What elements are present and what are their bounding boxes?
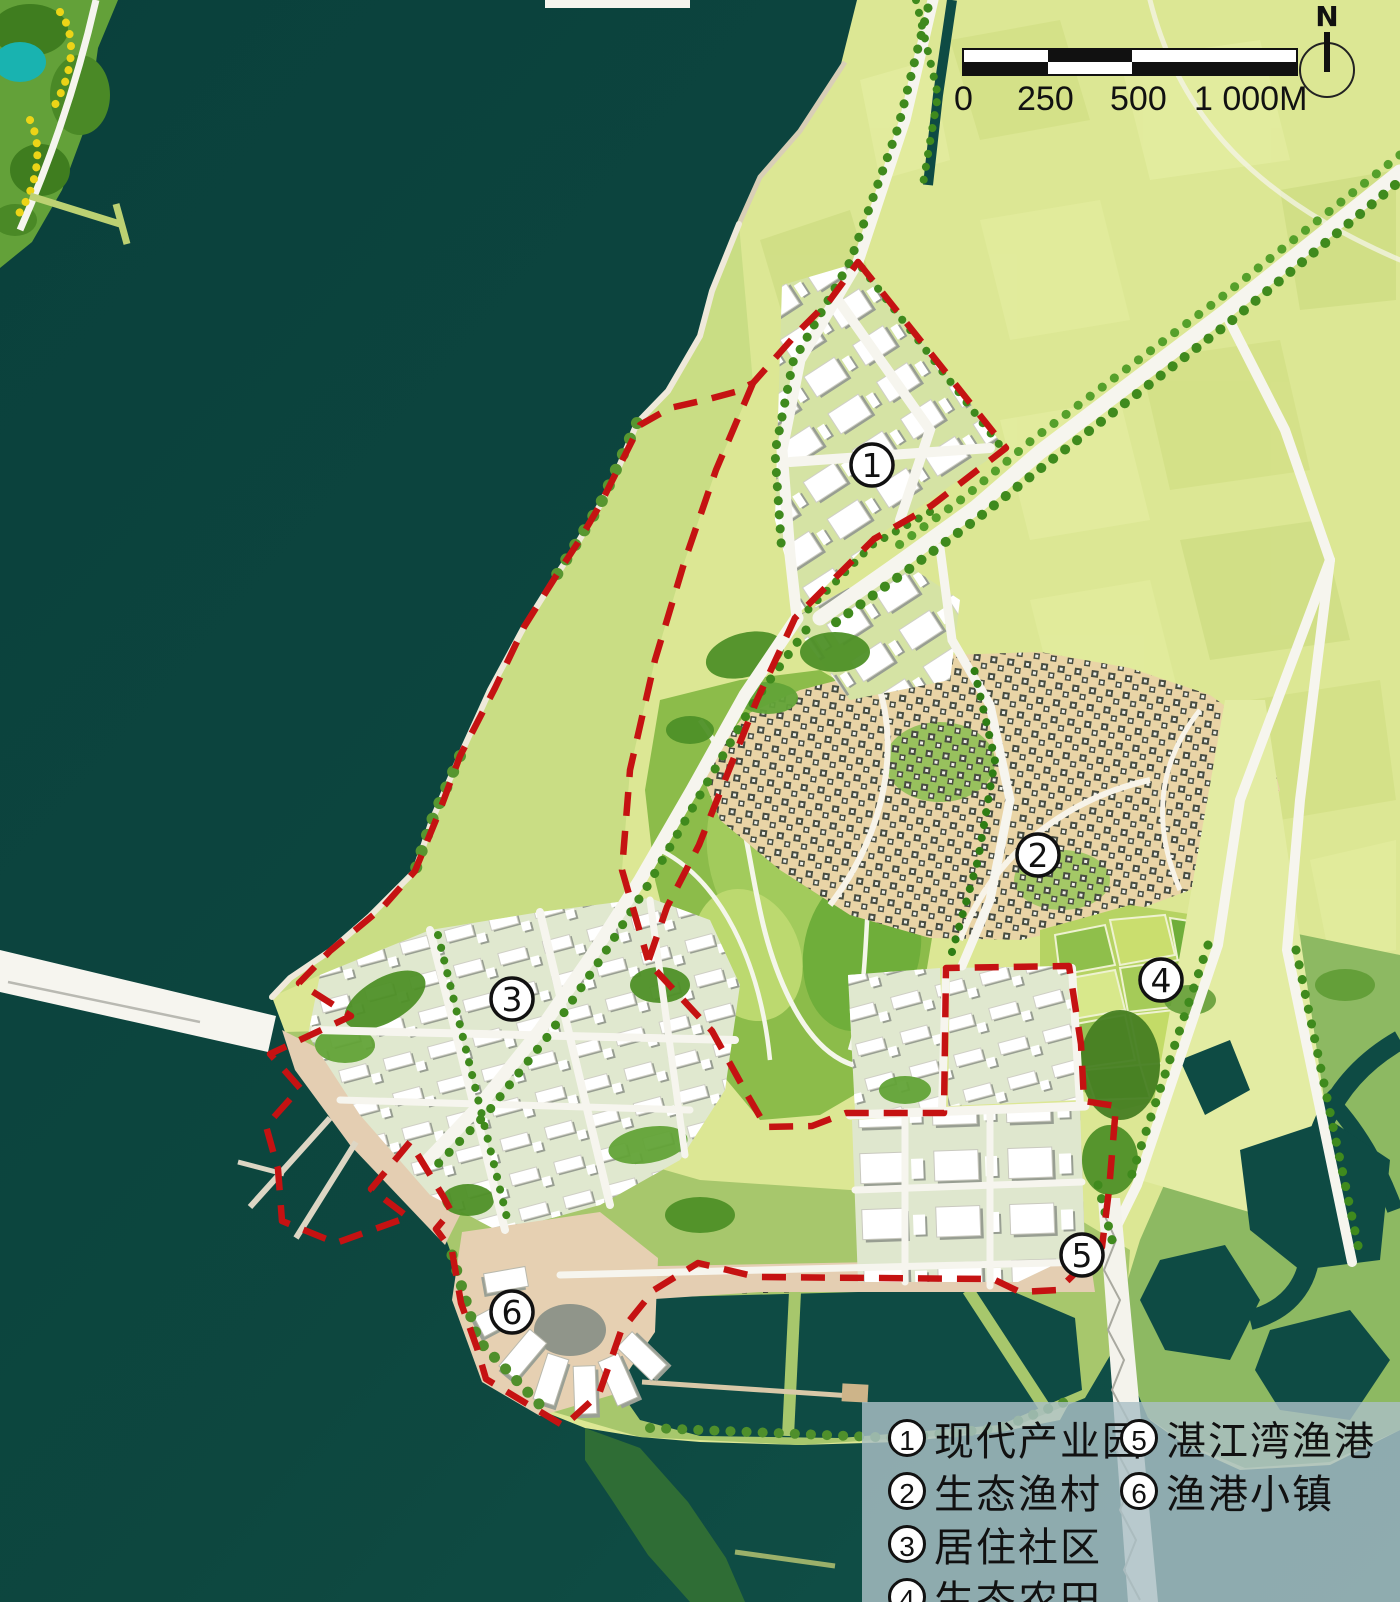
legend-column-2: 5 湛江湾渔港 6 渔港小镇 xyxy=(1120,1412,1376,1518)
legend-item-1: 1 现代产业园 xyxy=(888,1412,1144,1464)
legend-item-4-label: 生态农田 xyxy=(934,1568,1102,1602)
svg-text:2: 2 xyxy=(1028,836,1049,875)
svg-text:4: 4 xyxy=(1151,961,1172,1000)
area-marker-1: 1 xyxy=(851,444,893,486)
svg-text:5: 5 xyxy=(1072,1236,1093,1275)
legend-item-6-label: 渔港小镇 xyxy=(1166,1462,1334,1520)
svg-text:1: 1 xyxy=(862,446,883,485)
area-marker-5: 5 xyxy=(1061,1234,1103,1276)
legend-item-1-number: 1 xyxy=(888,1419,926,1457)
legend-item-2-label: 生态渔村 xyxy=(934,1462,1102,1520)
legend-item-6-number: 6 xyxy=(1120,1472,1158,1510)
legend-item-2-number: 2 xyxy=(888,1472,926,1510)
legend-item-2: 2 生态渔村 xyxy=(888,1465,1144,1517)
legend-item-3: 3 居住社区 xyxy=(888,1518,1144,1570)
area-marker-3: 3 xyxy=(491,978,533,1020)
scale-label-0: 0 xyxy=(954,80,973,119)
top-road-sliver xyxy=(545,0,690,8)
area-marker-4: 4 xyxy=(1140,959,1182,1001)
legend-item-4-number: 4 xyxy=(888,1578,926,1602)
fishing-port-cluster xyxy=(852,1108,1085,1282)
legend-panel: 1 现代产业园 2 生态渔村 3 居住社区 4 生态农田 5 湛江湾渔港 6 渔… xyxy=(862,1402,1400,1602)
scale-label-500: 500 xyxy=(1110,80,1167,119)
masterplan-screenshot: 1 2 3 4 5 6 N xyxy=(0,0,1400,1602)
scale-bar-segments xyxy=(962,48,1298,76)
masterplan-map: 1 2 3 4 5 6 N xyxy=(0,0,1400,1602)
scale-bar: 0 250 500 1 000M xyxy=(962,48,1298,128)
north-label: N xyxy=(1315,0,1338,33)
legend-item-5: 5 湛江湾渔港 xyxy=(1120,1412,1376,1464)
legend-item-4: 4 生态农田 xyxy=(888,1571,1144,1602)
legend-item-3-number: 3 xyxy=(888,1525,926,1563)
legend-column-1: 1 现代产业园 2 生态渔村 3 居住社区 4 生态农田 xyxy=(888,1412,1144,1602)
scale-label-250: 250 xyxy=(1017,80,1074,119)
legend-item-3-label: 居住社区 xyxy=(934,1515,1102,1573)
legend-item-5-number: 5 xyxy=(1120,1419,1158,1457)
area-marker-6: 6 xyxy=(491,1291,533,1333)
legend-item-1-label: 现代产业园 xyxy=(934,1409,1144,1467)
legend-item-5-label: 湛江湾渔港 xyxy=(1166,1409,1376,1467)
svg-text:6: 6 xyxy=(502,1293,523,1332)
legend-item-6: 6 渔港小镇 xyxy=(1120,1465,1376,1517)
scale-label-1000m: 1 000M xyxy=(1194,80,1307,119)
svg-text:3: 3 xyxy=(502,980,523,1019)
area-marker-2: 2 xyxy=(1017,834,1059,876)
